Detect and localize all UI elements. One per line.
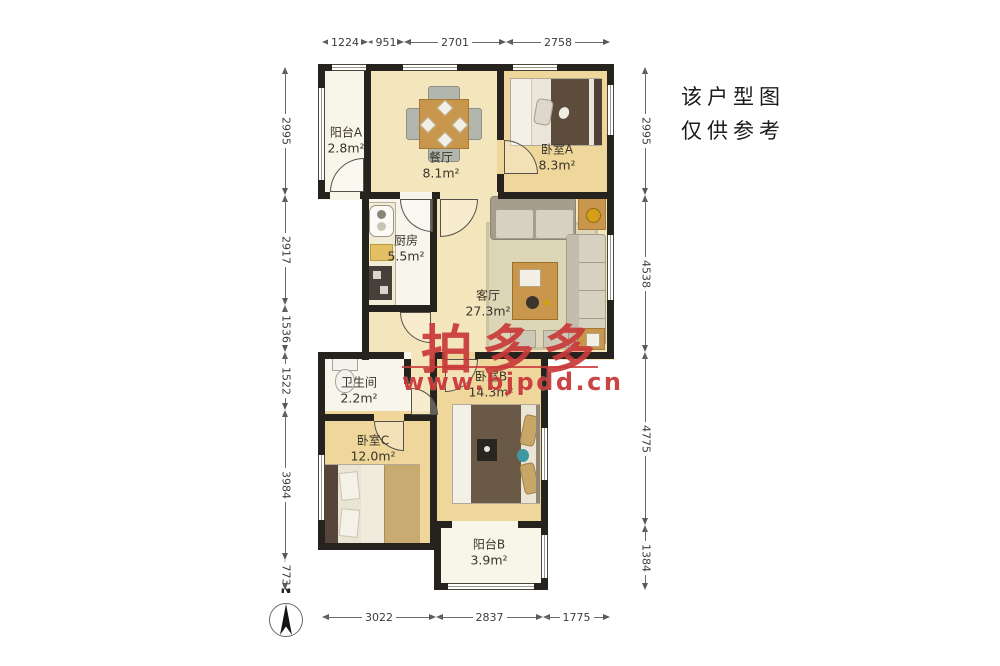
window <box>513 64 557 71</box>
room-name: 阳台A <box>330 126 362 140</box>
wall-segment <box>318 359 325 455</box>
wall-segment <box>497 71 504 140</box>
room-name: 餐厅 <box>429 151 453 165</box>
room-name: 阳台B <box>473 538 505 552</box>
wall-segment <box>557 64 614 71</box>
wall-segment <box>432 192 440 199</box>
dimension: 2995 <box>639 67 652 195</box>
wall-segment <box>366 64 403 71</box>
corner-table-icon <box>578 198 606 230</box>
dimension-label: 1775 <box>560 612 594 624</box>
dimension: 2917 <box>279 195 292 305</box>
wall-segment <box>318 414 374 421</box>
room-label-bedroom-a: 卧室A 8.3m² <box>538 143 575 174</box>
room-area: 8.3m² <box>538 158 575 173</box>
dimension-label: 4775 <box>640 422 652 456</box>
dimension: 3022 <box>322 611 436 624</box>
dimension-label: 2837 <box>473 612 507 624</box>
dimension-label: 1536 <box>280 312 292 346</box>
wall-segment <box>457 64 513 71</box>
bed-b-icon <box>452 404 540 504</box>
window <box>607 85 614 135</box>
wall-segment <box>318 543 438 550</box>
wall-segment <box>318 352 404 359</box>
dining-table-icon <box>406 86 480 160</box>
room-label-dining: 餐厅 8.1m² <box>422 151 459 182</box>
dimension-label: 3984 <box>280 468 292 502</box>
wall-segment <box>318 71 325 88</box>
dimension: 1224 <box>322 36 368 49</box>
room-name: 卧室A <box>541 143 573 157</box>
wall-segment <box>497 174 504 192</box>
room-area: 8.1m² <box>422 166 459 181</box>
dimension-label: 773 <box>280 562 292 589</box>
sink-icon <box>369 205 394 237</box>
room-area: 2.2m² <box>340 391 377 406</box>
dimension: 4775 <box>639 352 652 525</box>
room-label-bathroom: 卫生间 2.2m² <box>340 376 377 407</box>
bed-a-icon <box>510 78 602 146</box>
wall-segment <box>434 528 441 590</box>
room-area: 12.0m² <box>350 449 395 464</box>
window <box>541 535 548 578</box>
dimension-label: 3022 <box>362 612 396 624</box>
dimension-label: 2995 <box>280 114 292 148</box>
sofa-top-icon <box>490 196 576 240</box>
window <box>403 64 457 71</box>
room-area: 5.5m² <box>387 249 424 264</box>
room-name: 卫生间 <box>341 376 377 390</box>
wall-segment <box>607 135 614 235</box>
wall-segment <box>434 521 452 528</box>
dimension-label: 2701 <box>438 37 472 49</box>
wall-segment <box>607 300 614 359</box>
dimension-label: 1384 <box>640 541 652 575</box>
stove-icon <box>369 266 392 300</box>
window <box>332 64 366 71</box>
reference-note: 该户型图 仅供参考 <box>681 80 785 148</box>
room-label-bedroom-c: 卧室C 12.0m² <box>350 434 395 465</box>
window <box>541 428 548 480</box>
dimension: 3984 <box>279 410 292 560</box>
chair-icon <box>467 108 482 140</box>
dimension: 1536 <box>279 305 292 352</box>
room-name: 厨房 <box>394 234 418 248</box>
wall-segment <box>318 64 332 71</box>
wall-segment <box>360 192 400 199</box>
compass-icon <box>266 598 306 642</box>
window <box>607 235 614 300</box>
dimension-label: 2995 <box>640 114 652 148</box>
dimension: 1522 <box>279 352 292 410</box>
table-top <box>419 99 469 149</box>
wall-segment <box>498 192 614 199</box>
wall-segment <box>318 520 325 543</box>
room-name: 卧室C <box>357 434 389 448</box>
dimension: 2758 <box>506 36 610 49</box>
wall-segment <box>318 180 325 192</box>
room-name: 客厅 <box>476 289 500 303</box>
wall-segment <box>534 583 548 590</box>
dimension: 951 <box>368 36 404 49</box>
room-label-balcony-b: 阳台B 3.9m² <box>470 538 507 569</box>
window <box>318 455 325 520</box>
room-area: 2.8m² <box>327 141 364 156</box>
window <box>318 88 325 180</box>
wall-segment <box>518 521 548 528</box>
wall-segment <box>318 192 330 199</box>
window <box>448 583 534 590</box>
wall-segment <box>434 583 448 590</box>
wall-segment <box>607 71 614 85</box>
bed-c-icon <box>324 464 420 544</box>
dimension: 2837 <box>436 611 543 624</box>
room-label-kitchen: 厨房 5.5m² <box>387 234 424 265</box>
dimension: 773 <box>279 560 292 590</box>
dimension-label: 2758 <box>541 37 575 49</box>
dimension: 1384 <box>639 525 652 590</box>
room-label-balcony-a: 阳台A 2.8m² <box>327 126 364 157</box>
reference-note-line1: 该户型图 <box>681 80 785 114</box>
dimension: 2701 <box>404 36 506 49</box>
room-area: 3.9m² <box>470 553 507 568</box>
dimension-label: 951 <box>373 37 400 49</box>
dimension-label: 1522 <box>280 364 292 398</box>
floor-plan-page: 阳台A 2.8m² 餐厅 8.1m² 卧室A 8.3m² 厨房 5.5m² 客厅… <box>0 0 1000 666</box>
dimension: 1775 <box>543 611 610 624</box>
north-compass: N <box>266 582 306 644</box>
watermark-url: www.bjpdd.cn <box>402 368 623 396</box>
dimension-label: 2917 <box>280 233 292 267</box>
reference-note-line2: 仅供参考 <box>681 114 785 148</box>
dimension: 2995 <box>279 67 292 195</box>
wall-segment <box>364 71 371 192</box>
dimension-label: 4538 <box>640 257 652 291</box>
wall-segment <box>362 199 369 360</box>
dimension: 4538 <box>639 195 652 352</box>
dimension-label: 1224 <box>328 37 362 49</box>
wall-segment <box>404 414 437 421</box>
